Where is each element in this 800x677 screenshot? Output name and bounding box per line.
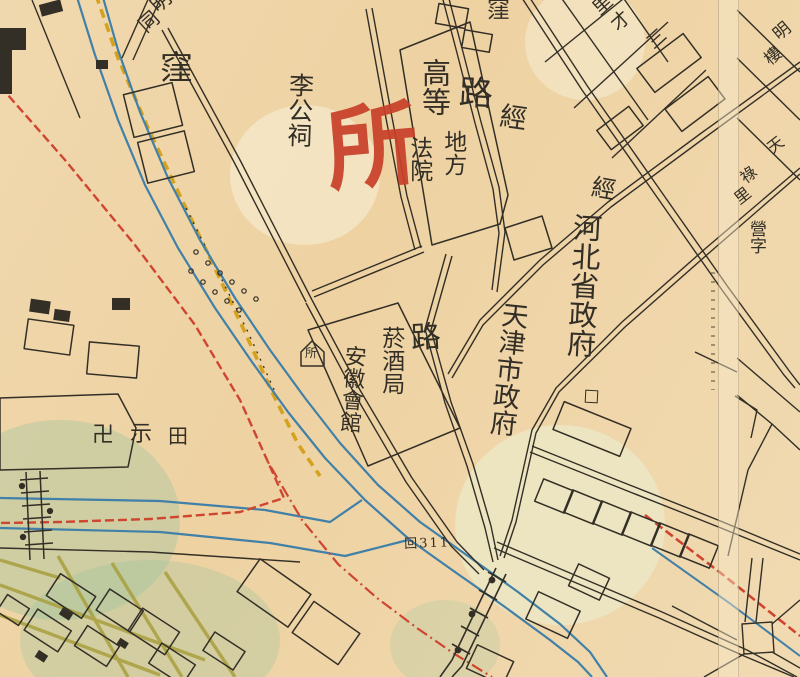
label-li-gong-ci: 李公祠 xyxy=(283,72,314,148)
canal xyxy=(0,498,408,556)
label-small-note: 回311 xyxy=(404,536,450,552)
label-hebei-provincial-government: 河北省政府 xyxy=(562,212,602,359)
swastika-symbol: 卍 xyxy=(92,424,114,449)
label-wa-left: 窪 xyxy=(160,50,193,87)
streets-olive xyxy=(0,556,235,677)
label-road-lu-upper: 路 xyxy=(458,74,494,114)
label-yingzi: 營字 xyxy=(746,220,765,254)
label-road-jing-upper: 經 xyxy=(498,102,529,136)
fold-tick-marks xyxy=(711,272,715,390)
label-road-lu-mid: 路 xyxy=(410,320,442,355)
gate-square-symbol xyxy=(585,390,599,404)
label-suo-small: 所 xyxy=(305,347,317,360)
label-anhui-guild-hall: 安徽會館 xyxy=(335,344,366,434)
label-court-gaodeng: 高等 xyxy=(418,58,450,116)
label-wa-top: 窪 xyxy=(487,0,510,24)
label-road-jing-mid: 經 xyxy=(589,174,617,205)
field-symbol: 田 xyxy=(168,425,188,447)
map-canvas[interactable]: 明 同 窪 窪 李公祠 所 高等 法院 地方 路 經 經 路 菸酒局 安徽會館 … xyxy=(0,0,800,677)
label-court-fayuan: 法院 xyxy=(405,136,431,182)
fold-crease xyxy=(718,0,739,677)
label-tobacco-bureau: 菸酒局 xyxy=(377,326,403,395)
label-court-difang: 地方 xyxy=(439,130,465,176)
shrine-symbol: 示 xyxy=(130,423,152,448)
bridge-hatched-canal xyxy=(20,471,53,560)
